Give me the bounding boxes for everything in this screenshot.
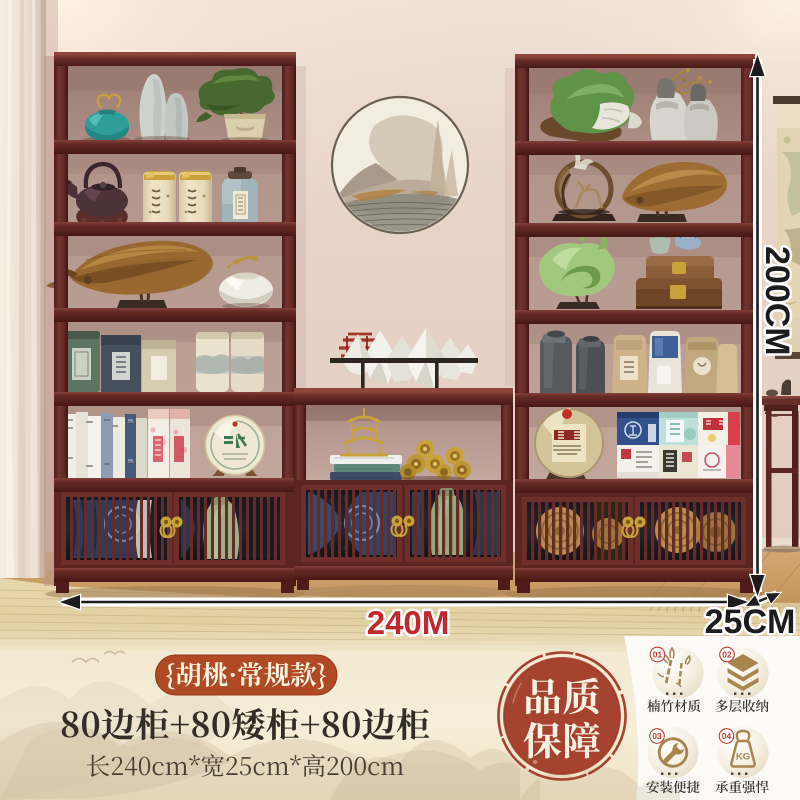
svg-text:KG: KG [736, 752, 750, 763]
